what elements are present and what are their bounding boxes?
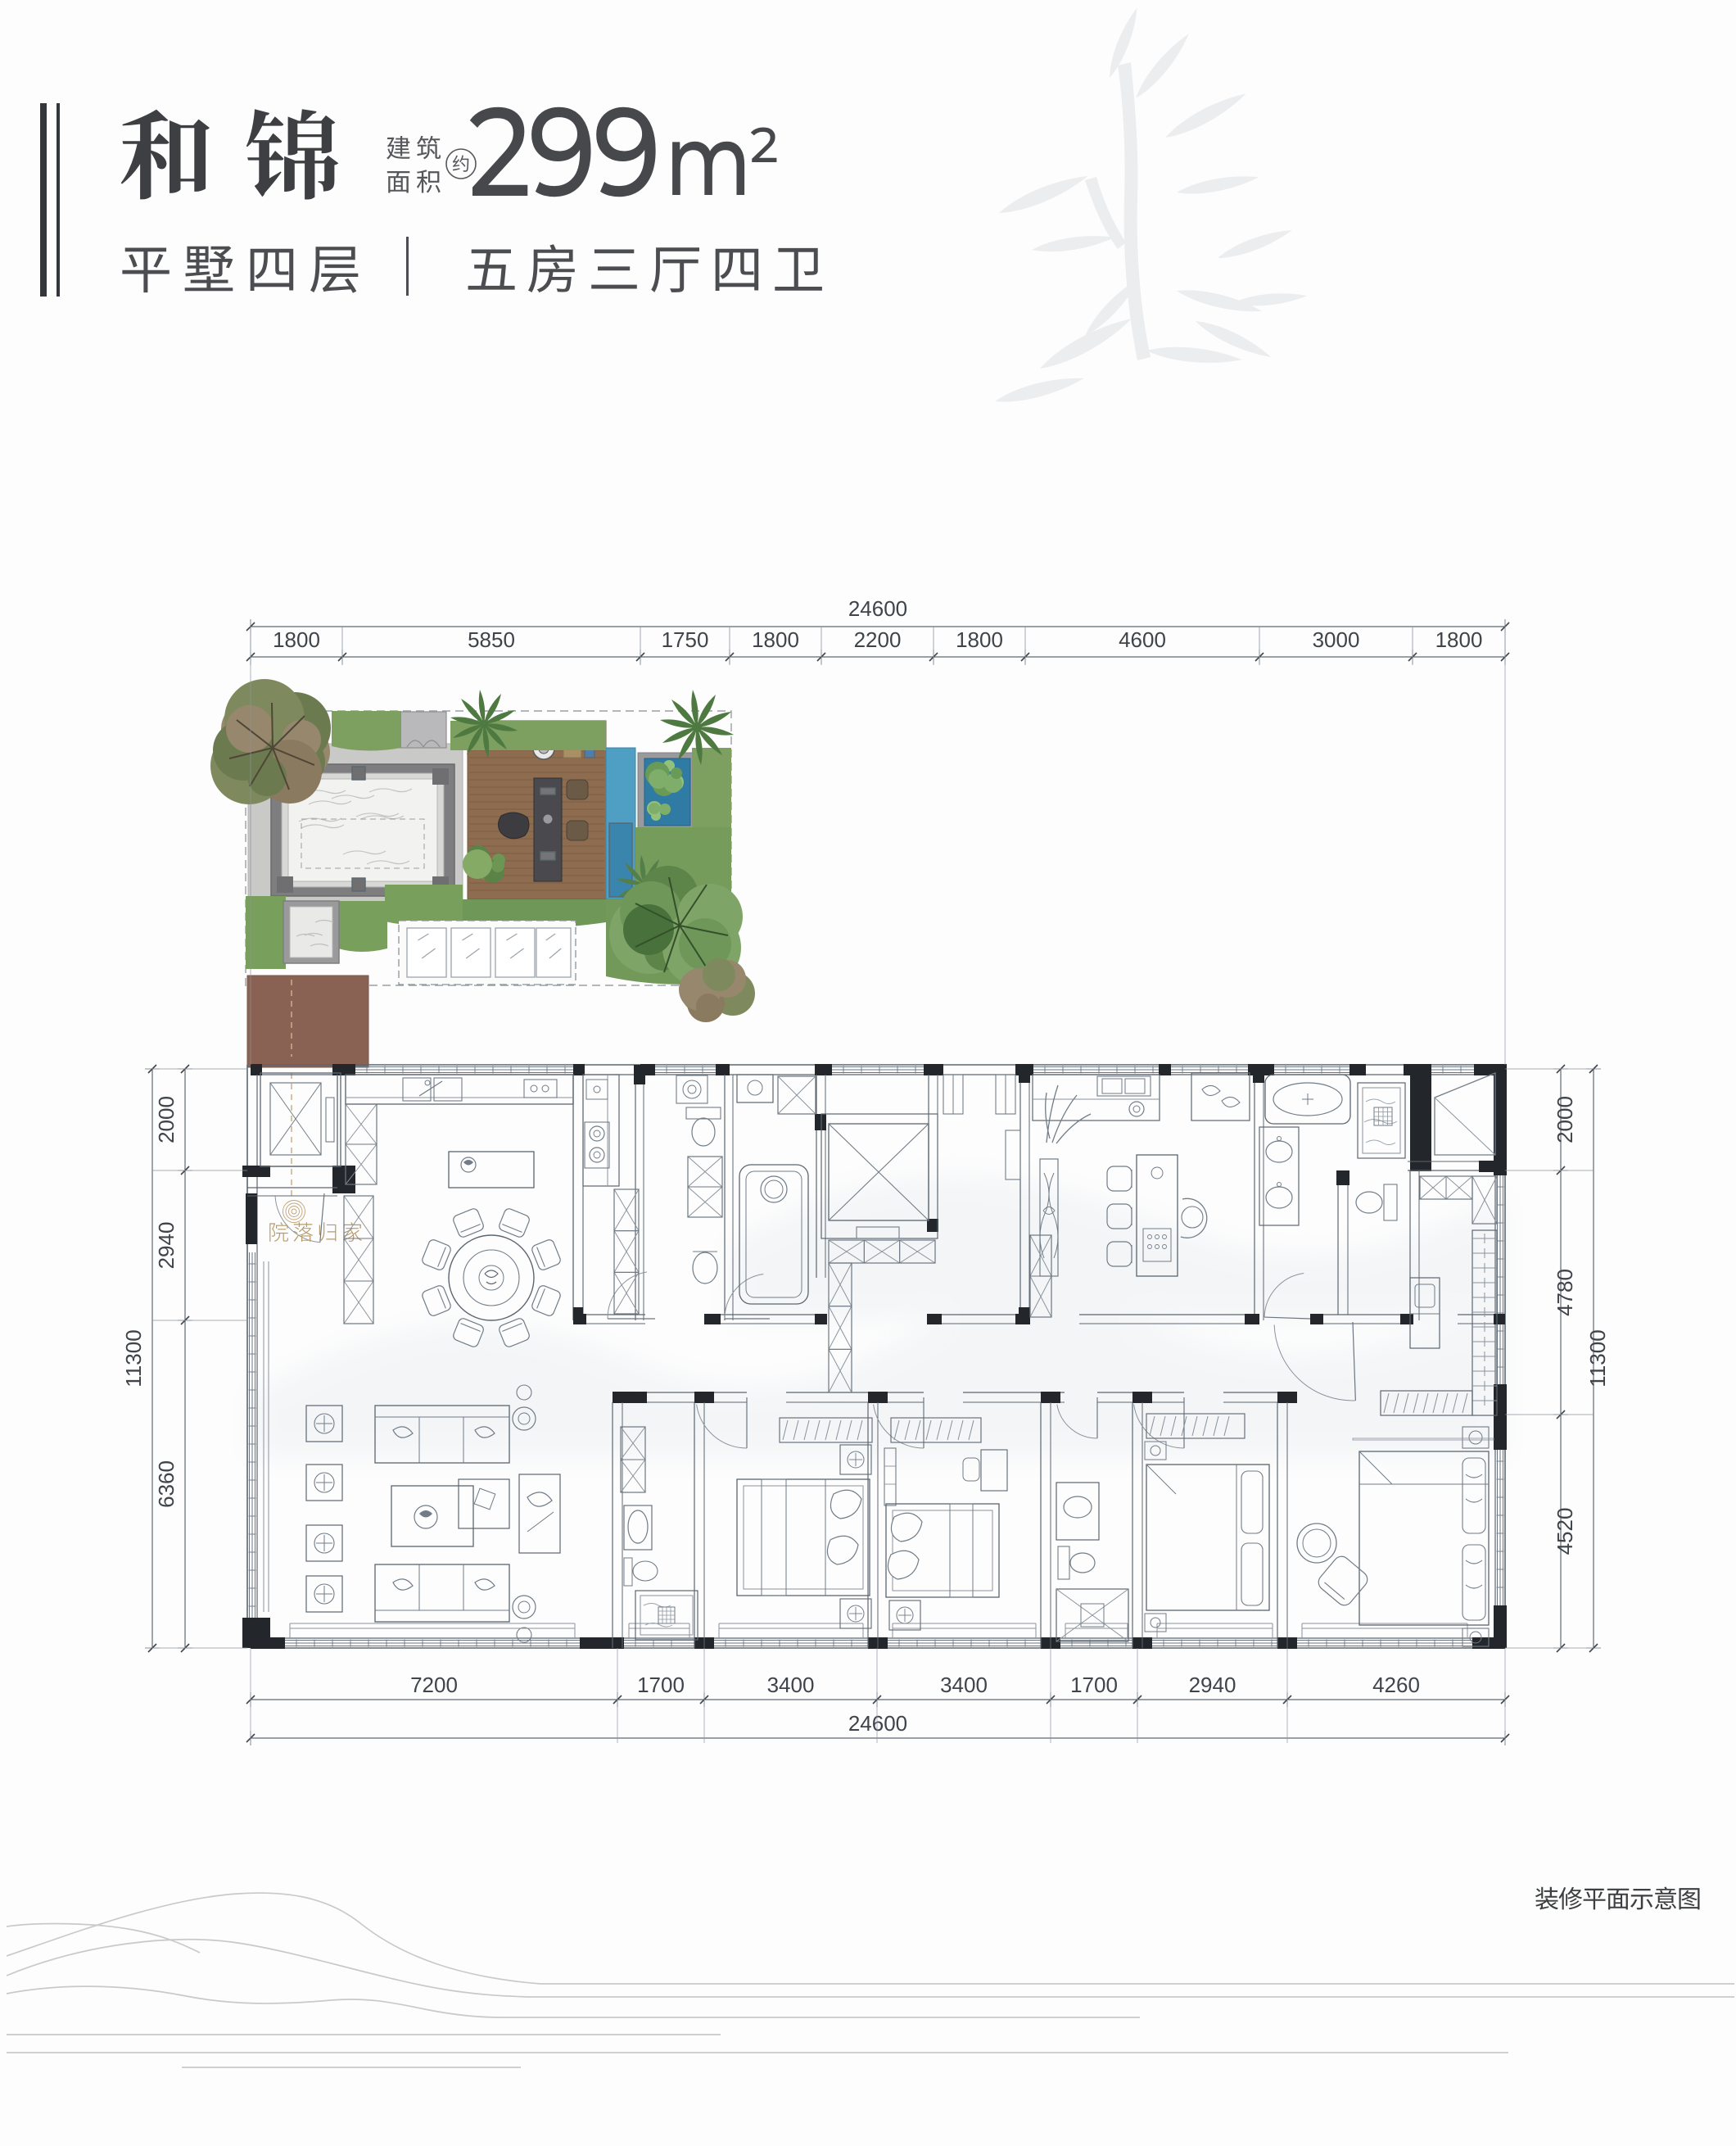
svg-text:1800: 1800	[752, 627, 799, 652]
svg-text:1800: 1800	[1435, 627, 1483, 652]
svg-text:2000: 2000	[1553, 1096, 1577, 1143]
svg-text:2940: 2940	[1189, 1673, 1236, 1697]
svg-text:3400: 3400	[767, 1673, 815, 1697]
svg-text:2000: 2000	[154, 1096, 179, 1143]
svg-text:3000: 3000	[1313, 627, 1360, 652]
svg-text:3400: 3400	[940, 1673, 988, 1697]
svg-text:24600: 24600	[848, 1711, 907, 1736]
svg-text:4780: 4780	[1553, 1269, 1577, 1316]
svg-text:4600: 4600	[1119, 627, 1166, 652]
svg-text:1700: 1700	[1070, 1673, 1118, 1697]
svg-text:2940: 2940	[154, 1222, 179, 1270]
svg-text:24600: 24600	[848, 596, 907, 621]
svg-text:4260: 4260	[1372, 1673, 1420, 1697]
svg-text:11300: 11300	[121, 1329, 146, 1387]
svg-text:1750: 1750	[662, 627, 709, 652]
svg-text:2200: 2200	[854, 627, 902, 652]
svg-text:7200: 7200	[410, 1673, 458, 1697]
svg-text:1700: 1700	[637, 1673, 685, 1697]
svg-text:11300: 11300	[1585, 1329, 1610, 1387]
svg-text:5850: 5850	[468, 627, 515, 652]
svg-text:1800: 1800	[956, 627, 1003, 652]
svg-text:6360: 6360	[154, 1460, 179, 1508]
svg-text:4520: 4520	[1553, 1508, 1577, 1555]
svg-text:1800: 1800	[273, 627, 320, 652]
